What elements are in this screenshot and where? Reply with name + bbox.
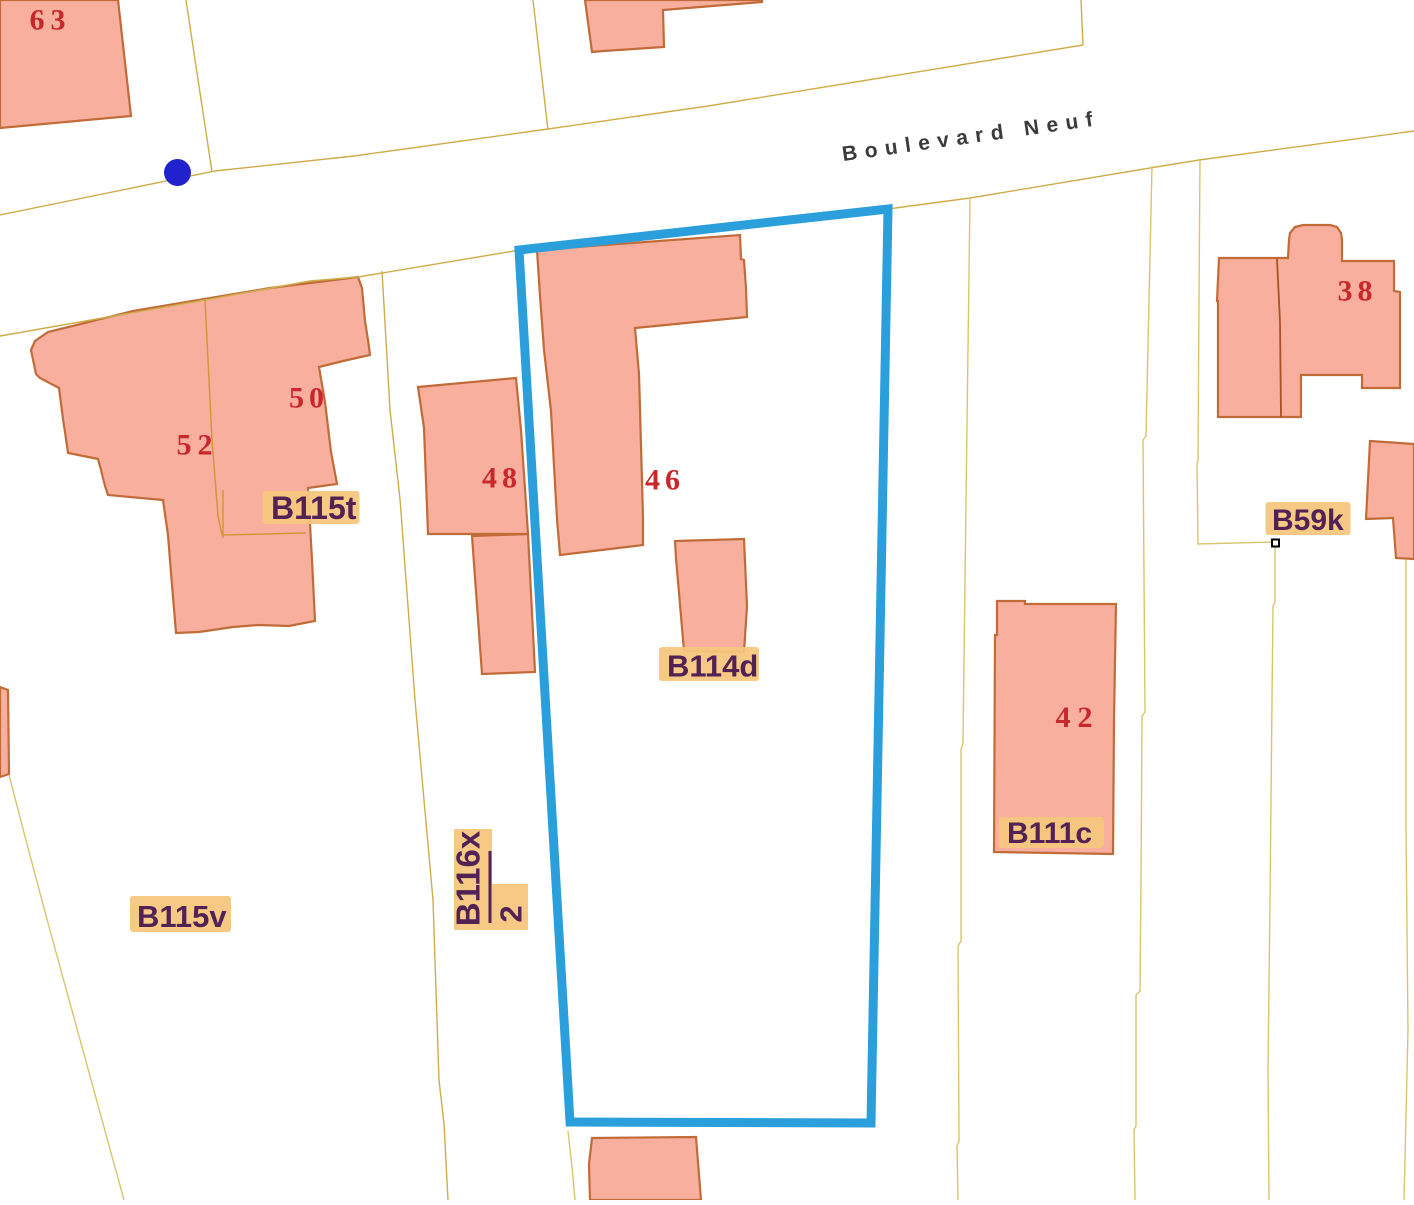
svg-text:50: 50 [289,382,329,415]
svg-text:B111c: B111c [1007,817,1092,850]
svg-text:B116x: B116x [450,830,487,926]
svg-text:2: 2 [494,905,529,922]
svg-text:48: 48 [482,462,522,495]
svg-text:B115v: B115v [137,899,227,934]
svg-text:B114d: B114d [667,649,758,684]
svg-text:42: 42 [1056,701,1100,734]
svg-text:38: 38 [1338,275,1378,308]
svg-text:B59k: B59k [1272,504,1344,537]
svg-text:B115t: B115t [271,490,357,526]
svg-text:46: 46 [645,464,685,497]
svg-text:52: 52 [177,429,219,462]
svg-text:63: 63 [30,4,72,37]
